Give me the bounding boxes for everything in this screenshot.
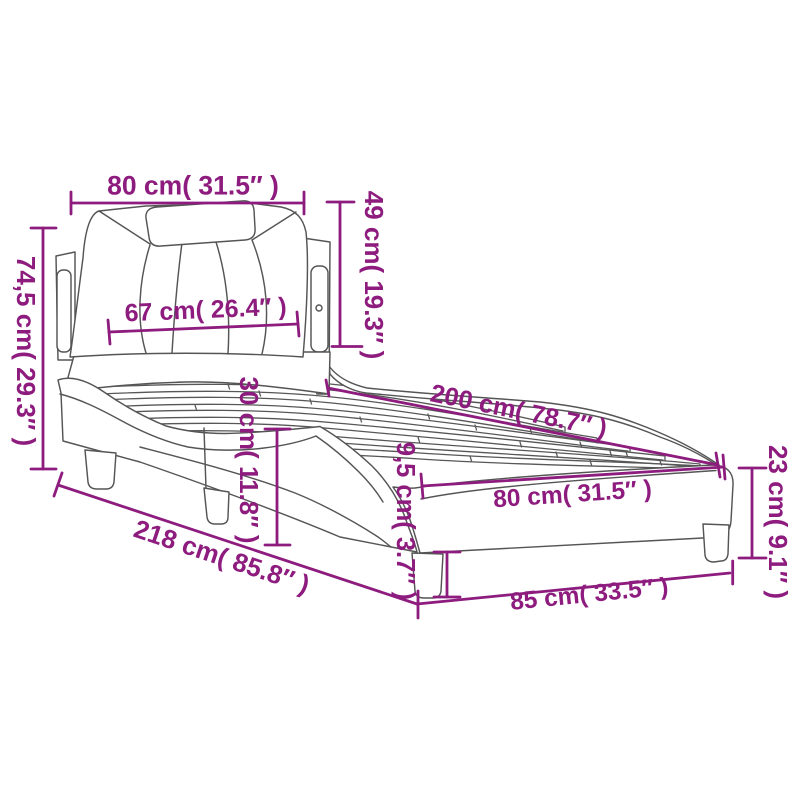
- svg-text:218 cm( 85.8″ ): 218 cm( 85.8″ ): [130, 513, 313, 599]
- svg-text:23 cm( 9.1″ ): 23 cm( 9.1″ ): [763, 445, 793, 599]
- svg-text:9,5 cm( 3.7″ ): 9,5 cm( 3.7″ ): [391, 442, 419, 600]
- svg-text:200 cm( 78.7″ ): 200 cm( 78.7″ ): [428, 379, 609, 443]
- svg-text:30 cm( 11.8″ ): 30 cm( 11.8″ ): [234, 376, 264, 543]
- svg-text:80 cm( 31.5″ ): 80 cm( 31.5″ ): [107, 171, 279, 201]
- svg-text:74,5 cm( 29.3″ ): 74,5 cm( 29.3″ ): [11, 256, 41, 446]
- svg-text:49 cm( 19.3″ ): 49 cm( 19.3″ ): [359, 191, 389, 360]
- svg-text:85 cm( 33.5″ ): 85 cm( 33.5″ ): [509, 573, 670, 616]
